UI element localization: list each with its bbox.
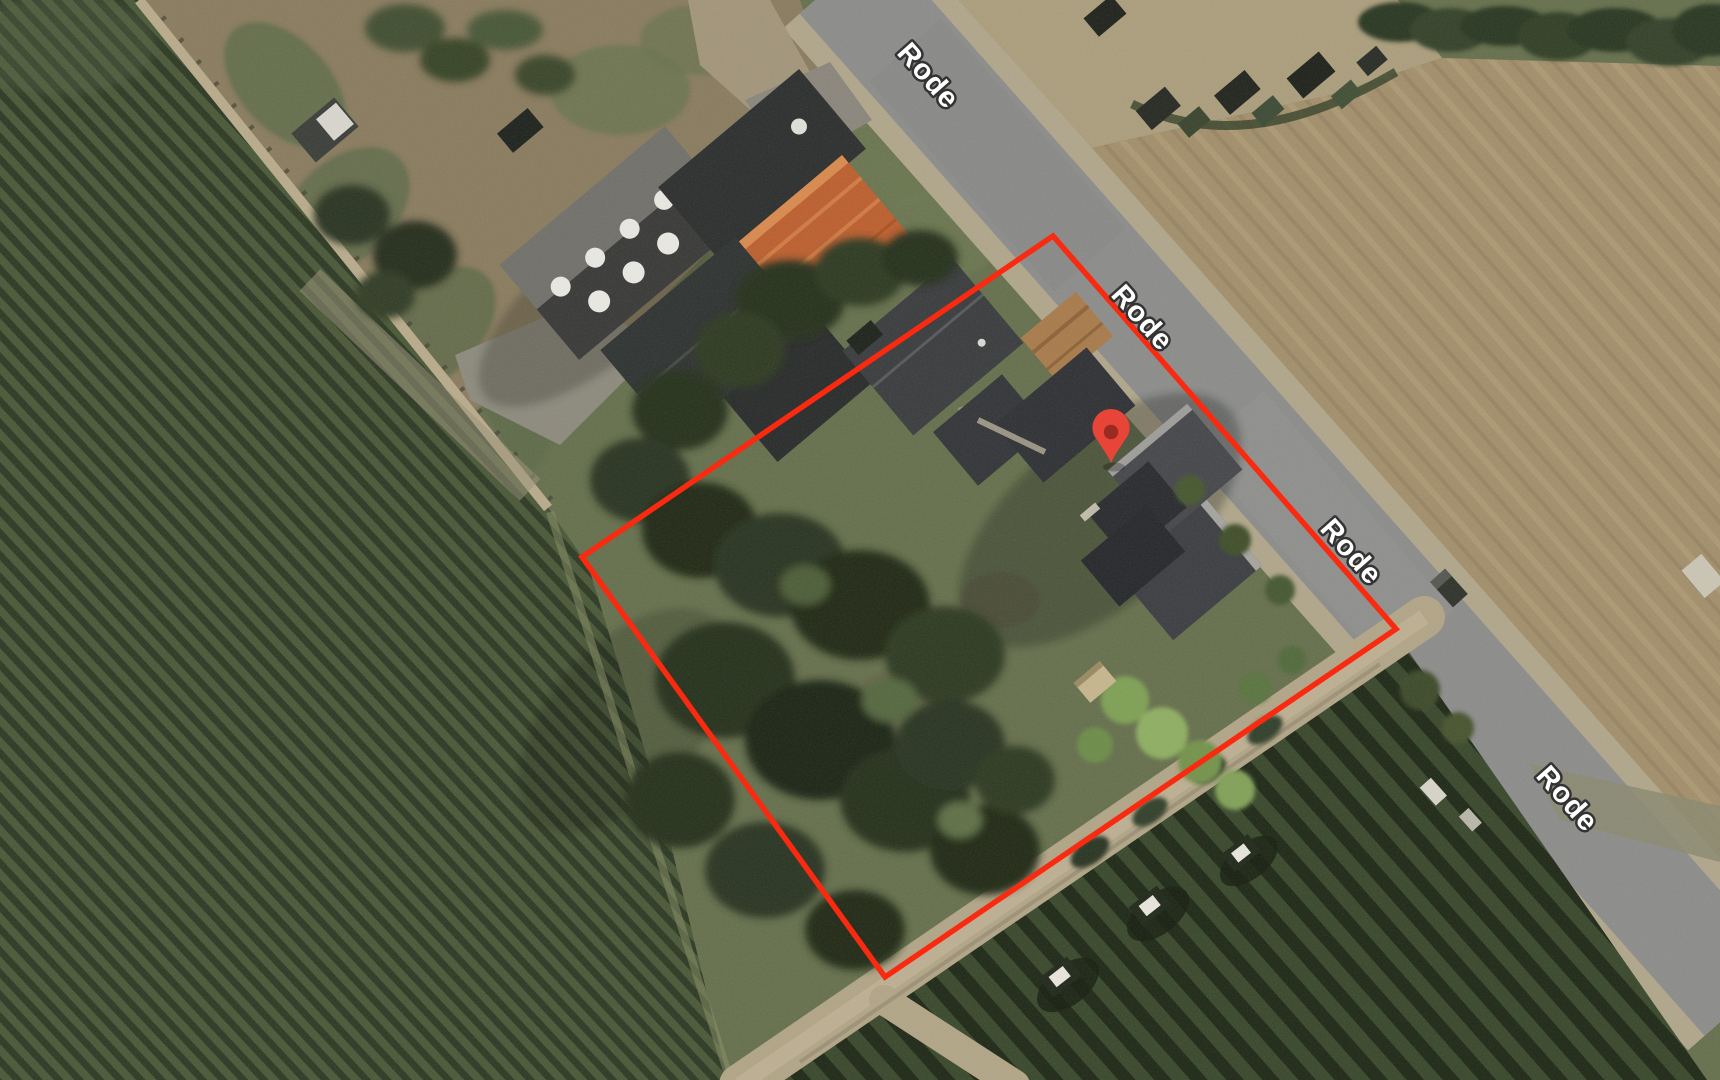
pin-dot — [1104, 425, 1118, 439]
satellite-canvas: RodeRodeRodeRode — [0, 0, 1720, 1080]
map-viewport[interactable]: RodeRodeRodeRode — [0, 0, 1720, 1080]
photo-grain-overlay — [0, 0, 1720, 1080]
pin-shadow — [1103, 463, 1125, 472]
